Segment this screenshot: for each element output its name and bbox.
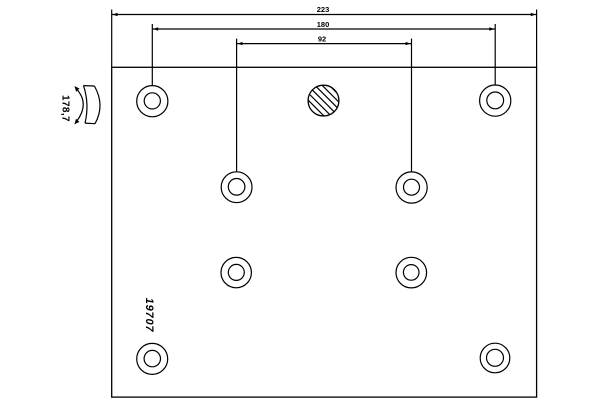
svg-text:92: 92 — [318, 35, 326, 44]
svg-text:178,7: 178,7 — [60, 95, 71, 122]
svg-text:180: 180 — [317, 20, 330, 29]
svg-text:223: 223 — [317, 5, 330, 14]
svg-text:19707: 19707 — [143, 298, 155, 333]
